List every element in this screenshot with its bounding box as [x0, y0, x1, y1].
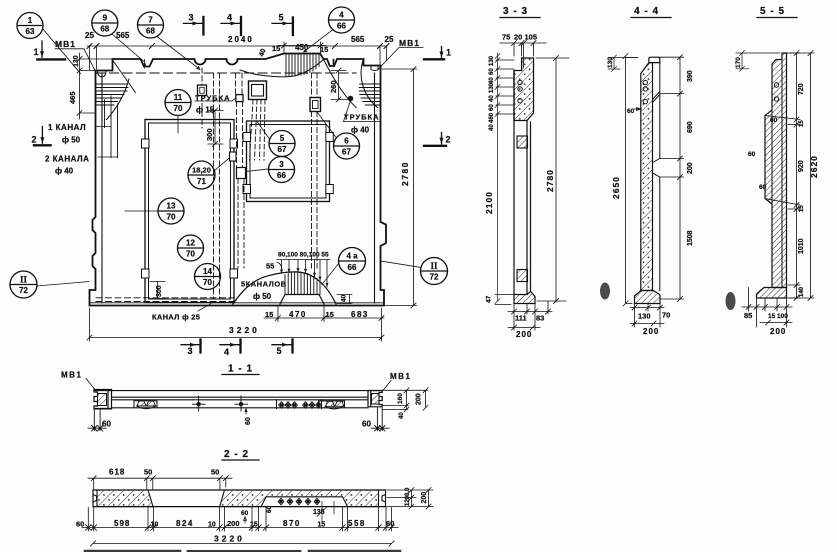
- svg-text:15: 15: [768, 313, 776, 320]
- svg-text:85: 85: [744, 311, 752, 320]
- svg-text:80,100 80,100 55: 80,100 80,100 55: [278, 252, 329, 259]
- svg-text:465: 465: [68, 91, 77, 104]
- svg-text:60: 60: [748, 151, 756, 158]
- svg-text:КАНАЛ ф 25: КАНАЛ ф 25: [152, 313, 200, 322]
- svg-text:13: 13: [167, 202, 176, 211]
- svg-text:18,20: 18,20: [192, 166, 211, 175]
- svg-text:75: 75: [502, 33, 510, 42]
- svg-text:67: 67: [278, 145, 287, 154]
- svg-text:60: 60: [386, 519, 394, 528]
- svg-text:66: 66: [348, 263, 357, 272]
- svg-text:200: 200: [687, 162, 694, 174]
- svg-text:60: 60: [627, 108, 635, 115]
- svg-text:10: 10: [208, 522, 216, 529]
- svg-text:60: 60: [102, 420, 111, 429]
- svg-text:4: 4: [224, 347, 229, 357]
- svg-text:9: 9: [103, 14, 108, 23]
- svg-text:1010: 1010: [798, 238, 805, 254]
- svg-text:МВ1: МВ1: [55, 39, 76, 49]
- svg-text:15: 15: [799, 205, 805, 212]
- svg-text:2100: 2100: [484, 191, 494, 214]
- svg-text:15: 15: [250, 522, 258, 529]
- svg-text:2780: 2780: [545, 169, 555, 192]
- svg-text:1: 1: [34, 47, 39, 57]
- svg-text:II: II: [430, 261, 438, 271]
- svg-text:55: 55: [266, 262, 274, 271]
- svg-text:ТРУБКА: ТРУБКА: [344, 113, 380, 122]
- svg-text:70: 70: [174, 104, 183, 113]
- svg-text:2 КАНАЛА: 2 КАНАЛА: [45, 155, 89, 164]
- svg-text:1: 1: [28, 16, 33, 25]
- svg-text:МВ1: МВ1: [390, 372, 411, 381]
- svg-text:5КАНАЛОВ: 5КАНАЛОВ: [241, 280, 287, 289]
- svg-text:135: 135: [313, 509, 325, 516]
- svg-text:565: 565: [351, 35, 365, 44]
- svg-text:1508: 1508: [687, 230, 694, 246]
- svg-text:10: 10: [151, 522, 159, 529]
- svg-text:1: 1: [446, 48, 451, 58]
- svg-text:14: 14: [203, 267, 212, 276]
- svg-text:3: 3: [279, 160, 284, 169]
- svg-text:20: 20: [514, 33, 522, 42]
- svg-text:130: 130: [489, 82, 495, 93]
- svg-text:4: 4: [339, 11, 344, 20]
- svg-text:72: 72: [19, 286, 28, 295]
- svg-text:105: 105: [525, 33, 538, 42]
- svg-text:130: 130: [73, 55, 80, 67]
- svg-text:ф 15: ф 15: [196, 106, 215, 115]
- svg-text:II: II: [20, 275, 28, 285]
- svg-text:870: 870: [283, 519, 301, 528]
- svg-text:558: 558: [348, 519, 366, 528]
- svg-text:6: 6: [344, 137, 349, 146]
- svg-text:460: 460: [489, 112, 495, 123]
- svg-text:5: 5: [277, 346, 282, 356]
- svg-text:5: 5: [279, 13, 284, 23]
- svg-text:66: 66: [337, 22, 346, 31]
- svg-text:2650: 2650: [611, 176, 621, 199]
- svg-text:68: 68: [100, 25, 109, 34]
- svg-text:68: 68: [146, 27, 155, 36]
- svg-text:140: 140: [799, 286, 805, 297]
- svg-text:70: 70: [203, 278, 212, 287]
- svg-text:ф 50: ф 50: [253, 292, 272, 301]
- svg-text:11: 11: [174, 93, 183, 102]
- svg-text:598: 598: [114, 519, 130, 528]
- svg-text:3: 3: [189, 13, 194, 23]
- svg-text:47: 47: [486, 295, 493, 303]
- svg-text:111: 111: [515, 314, 527, 323]
- svg-text:60: 60: [362, 420, 371, 429]
- svg-text:1 - 1: 1 - 1: [228, 364, 253, 375]
- svg-text:200: 200: [421, 492, 428, 504]
- svg-text:170: 170: [735, 57, 742, 68]
- svg-text:200: 200: [770, 327, 786, 336]
- svg-text:71: 71: [197, 177, 206, 186]
- svg-text:12: 12: [186, 239, 195, 248]
- svg-text:60: 60: [241, 510, 249, 517]
- svg-text:70: 70: [662, 311, 670, 320]
- svg-text:3220: 3220: [229, 325, 260, 335]
- svg-text:1 КАНАЛ: 1 КАНАЛ: [48, 123, 86, 132]
- svg-text:МВ1: МВ1: [399, 38, 420, 48]
- svg-text:40: 40: [489, 95, 495, 102]
- svg-text:200: 200: [416, 393, 423, 405]
- svg-text:40: 40: [399, 412, 405, 419]
- svg-text:ТРУБКА: ТРУБКА: [195, 94, 231, 103]
- svg-text:4: 4: [227, 13, 232, 23]
- svg-text:130: 130: [638, 312, 651, 321]
- svg-text:2: 2: [32, 135, 37, 145]
- svg-text:40: 40: [489, 77, 495, 84]
- svg-text:60: 60: [489, 104, 495, 111]
- svg-text:2780: 2780: [400, 161, 410, 186]
- svg-text:720: 720: [798, 83, 805, 95]
- svg-text:565: 565: [116, 31, 130, 40]
- svg-text:200: 200: [643, 327, 659, 336]
- svg-text:300: 300: [156, 285, 163, 297]
- svg-text:618: 618: [109, 468, 125, 477]
- svg-text:2 - 2: 2 - 2: [224, 449, 249, 460]
- svg-text:2040: 2040: [228, 35, 254, 44]
- svg-text:390: 390: [687, 70, 694, 82]
- svg-text:5: 5: [280, 134, 285, 143]
- svg-text:63: 63: [26, 27, 35, 36]
- svg-text:130: 130: [607, 57, 614, 68]
- svg-text:3220: 3220: [214, 534, 245, 544]
- svg-text:4 a: 4 a: [346, 252, 358, 261]
- svg-text:260: 260: [329, 80, 338, 93]
- svg-text:200: 200: [227, 519, 240, 528]
- svg-text:40: 40: [341, 294, 348, 302]
- svg-text:7: 7: [148, 16, 153, 25]
- svg-text:5 - 5: 5 - 5: [760, 6, 785, 17]
- svg-text:920: 920: [798, 160, 805, 172]
- svg-text:130: 130: [489, 55, 495, 66]
- svg-text:ф 40: ф 40: [351, 126, 370, 135]
- svg-text:70: 70: [186, 250, 195, 259]
- svg-text:60: 60: [489, 68, 495, 75]
- svg-text:72: 72: [430, 273, 439, 282]
- svg-text:70: 70: [167, 213, 176, 222]
- svg-text:15: 15: [318, 522, 326, 529]
- svg-text:МВ1: МВ1: [61, 371, 82, 380]
- svg-text:824: 824: [176, 519, 194, 528]
- svg-text:120: 120: [405, 495, 411, 506]
- svg-text:ф 40: ф 40: [55, 167, 74, 176]
- svg-text:200: 200: [516, 330, 532, 339]
- svg-text:4 - 4: 4 - 4: [634, 6, 659, 17]
- svg-text:160: 160: [397, 393, 404, 404]
- svg-text:450: 450: [295, 43, 309, 52]
- svg-text:8.0: 8.0: [405, 487, 411, 496]
- svg-text:60: 60: [245, 417, 252, 425]
- svg-text:25: 25: [385, 35, 394, 44]
- svg-text:67: 67: [342, 148, 351, 157]
- svg-text:50: 50: [211, 468, 219, 477]
- svg-text:2: 2: [446, 135, 451, 145]
- svg-text:15: 15: [799, 120, 805, 127]
- svg-text:60: 60: [770, 117, 778, 124]
- svg-text:40: 40: [489, 124, 495, 131]
- svg-text:3 - 3: 3 - 3: [503, 6, 528, 17]
- svg-text:83: 83: [536, 314, 544, 323]
- svg-text:300: 300: [205, 128, 214, 141]
- svg-text:66: 66: [277, 171, 286, 180]
- svg-text:25: 25: [85, 31, 94, 40]
- svg-text:ф 50: ф 50: [62, 136, 81, 145]
- svg-text:60: 60: [266, 505, 273, 513]
- svg-text:3: 3: [188, 346, 193, 356]
- svg-text:60: 60: [759, 184, 767, 191]
- svg-text:50: 50: [144, 468, 152, 477]
- svg-text:60: 60: [76, 520, 84, 529]
- svg-text:690: 690: [687, 121, 694, 133]
